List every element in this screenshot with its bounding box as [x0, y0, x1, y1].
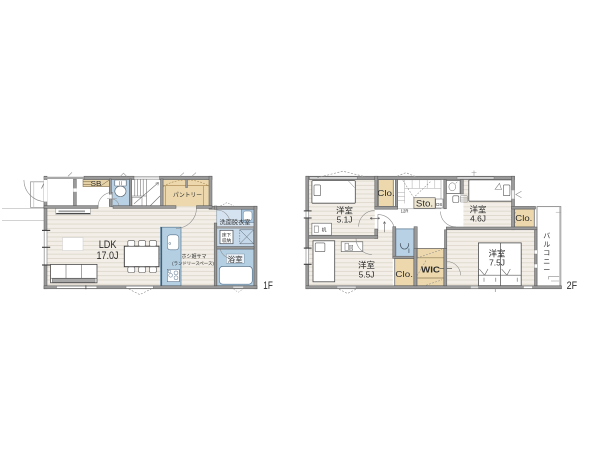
svg-text:5.5J: 5.5J: [359, 270, 375, 280]
svg-text:SB: SB: [91, 181, 102, 188]
svg-text:5.1J: 5.1J: [337, 214, 353, 224]
svg-text:収納: 収納: [222, 237, 232, 244]
svg-text:バ: バ: [543, 232, 550, 240]
svg-text:1F: 1F: [263, 280, 273, 292]
svg-text:机: 机: [322, 227, 327, 234]
svg-text:ル: ル: [543, 242, 550, 249]
svg-text:17.0J: 17.0J: [97, 250, 119, 262]
svg-text:12R: 12R: [401, 209, 409, 214]
svg-text:パントリー: パントリー: [173, 192, 202, 199]
svg-text:DS: DS: [436, 202, 442, 207]
svg-text:ニ: ニ: [543, 259, 550, 266]
svg-text:Clo.: Clo.: [377, 189, 395, 198]
svg-text:4.6J: 4.6J: [470, 214, 486, 224]
svg-text:2F: 2F: [567, 280, 578, 292]
svg-text:Sto.: Sto.: [416, 199, 433, 209]
svg-text:コ: コ: [543, 249, 550, 257]
svg-text:7.5J: 7.5J: [489, 257, 505, 267]
svg-text:Clo.: Clo.: [395, 270, 413, 279]
svg-text:洗面脱衣室: 洗面脱衣室: [220, 219, 251, 227]
svg-text:ー: ー: [543, 267, 550, 274]
svg-text:Clo.: Clo.: [515, 214, 532, 223]
svg-text:ホシ姫サマ: ホシ姫サマ: [181, 253, 206, 260]
svg-text:浴室: 浴室: [228, 254, 244, 264]
svg-text:洋室: 洋室: [358, 260, 375, 270]
svg-text:WIC: WIC: [421, 265, 440, 275]
